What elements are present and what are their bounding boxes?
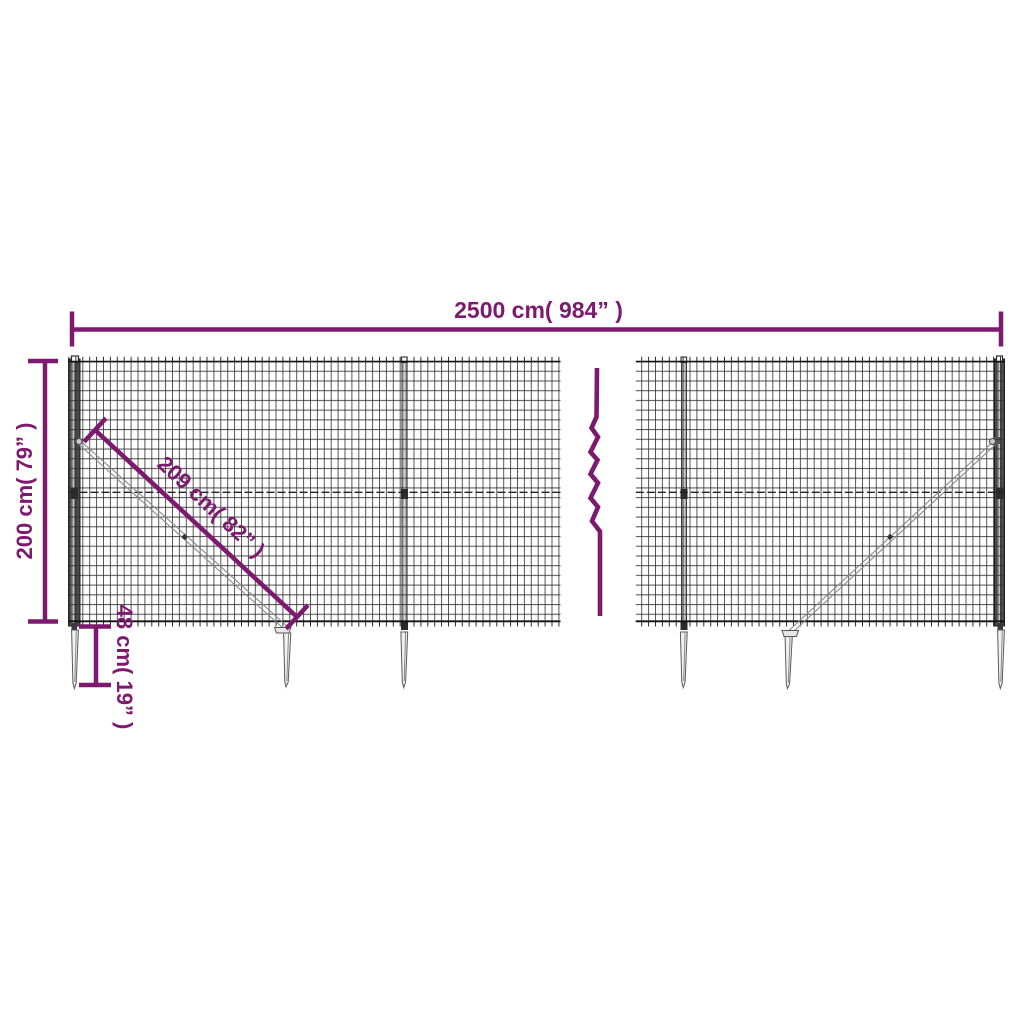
svg-text:200 cm( 79” ): 200 cm( 79” ) bbox=[12, 423, 37, 560]
svg-text:48 cm( 19” ): 48 cm( 19” ) bbox=[112, 605, 137, 730]
svg-text:2500 cm( 984” ): 2500 cm( 984” ) bbox=[454, 297, 623, 323]
